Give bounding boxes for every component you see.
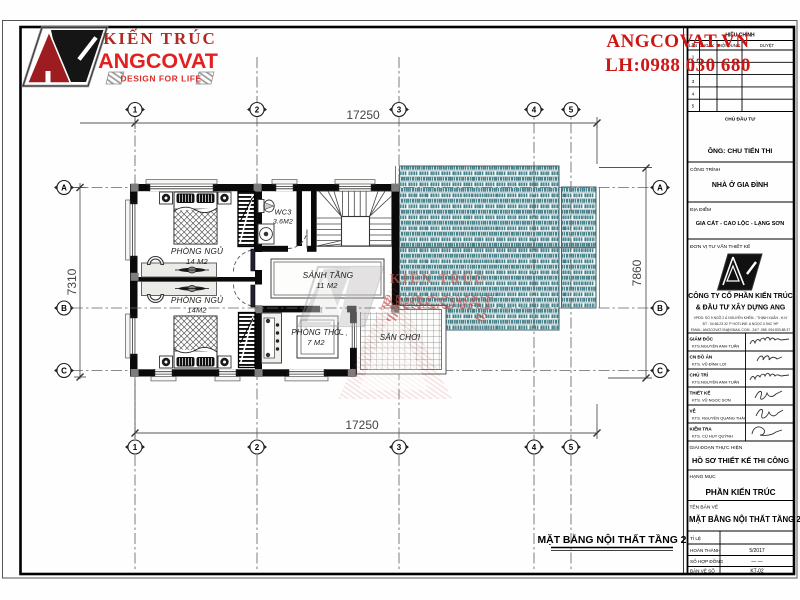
svg-text:3: 3 bbox=[397, 106, 402, 115]
svg-text:4: 4 bbox=[532, 443, 537, 452]
svg-text:KTS. VŨ NGỌC SƠN: KTS. VŨ NGỌC SƠN bbox=[692, 398, 731, 403]
svg-text:VPĐD: SỐ 9 NGÕ 2 Á NGUYỄN KHÊ: VPĐD: SỐ 9 NGÕ 2 Á NGUYỄN KHÊM - 'THỊNH … bbox=[694, 315, 788, 320]
svg-text:14 M2: 14 M2 bbox=[186, 257, 208, 266]
svg-text:HỒ SƠ THIẾT KẾ THI CÔNG: HỒ SƠ THIẾT KẾ THI CÔNG bbox=[692, 455, 789, 465]
svg-text:B: B bbox=[61, 304, 67, 313]
svg-text:ANGCOVAT.VN: ANGCOVAT.VN bbox=[606, 31, 749, 52]
svg-text:5: 5 bbox=[569, 443, 574, 452]
svg-text:KTS. VŨ ĐÌNH LỢI: KTS. VŨ ĐÌNH LỢI bbox=[692, 362, 726, 367]
svg-text:A: A bbox=[61, 184, 67, 193]
svg-text:1: 1 bbox=[133, 443, 138, 452]
svg-text:17250: 17250 bbox=[346, 108, 380, 122]
svg-text:B: B bbox=[657, 304, 663, 313]
svg-text:ĐƠN VỊ TƯ VẤN THIẾT KẾ: ĐƠN VỊ TƯ VẤN THIẾT KẾ bbox=[690, 243, 751, 250]
svg-text:EMAIL: ANGCOVAT.VN@GMAIL.CO: EMAIL: ANGCOVAT.VN@GMAIL.COM - 24/7 .058… bbox=[691, 328, 790, 332]
svg-text:ANGCOVAT: ANGCOVAT bbox=[98, 49, 218, 73]
svg-text:3.6M2: 3.6M2 bbox=[273, 219, 293, 226]
svg-text:LH:0988 030 680: LH:0988 030 680 bbox=[605, 55, 751, 76]
svg-text:SẢNH TẦNG: SẢNH TẦNG bbox=[303, 269, 354, 280]
svg-text:MẶT BẰNG NỘI THẤT TẦNG 2: MẶT BẰNG NỘI THẤT TẦNG 2 bbox=[689, 514, 800, 524]
svg-text:1: 1 bbox=[133, 106, 138, 115]
svg-text:CHỦ TRÌ: CHỦ TRÌ bbox=[690, 371, 709, 378]
svg-text:17250: 17250 bbox=[345, 418, 379, 432]
svg-text:NHÀ Ở GIA ĐÌNH: NHÀ Ở GIA ĐÌNH bbox=[712, 180, 768, 189]
svg-text:DUYỆT: DUYỆT bbox=[760, 43, 775, 48]
svg-text:TỈ LỆ: TỈ LỆ bbox=[690, 534, 701, 541]
svg-text:14M2: 14M2 bbox=[187, 306, 207, 315]
svg-text:7 M2: 7 M2 bbox=[307, 338, 325, 347]
svg-text:KIẾN TRÚC: KIẾN TRÚC bbox=[103, 29, 217, 48]
svg-text:BẢN VẼ SỐ: BẢN VẼ SỐ bbox=[690, 568, 715, 574]
svg-text:PHÒNG NGỦ: PHÒNG NGỦ bbox=[171, 294, 223, 305]
svg-text:C: C bbox=[61, 367, 67, 376]
svg-text:VẼ: VẼ bbox=[690, 408, 696, 414]
svg-text:CN ĐỒ ÁN: CN ĐỒ ÁN bbox=[690, 354, 713, 360]
svg-text:PHẦN KIẾN TRÚC: PHẦN KIẾN TRÚC bbox=[705, 486, 775, 497]
svg-text:7310: 7310 bbox=[65, 268, 79, 295]
svg-text:5/2017: 5/2017 bbox=[749, 548, 765, 554]
svg-text:2: 2 bbox=[255, 443, 260, 452]
svg-text:ĐT : 04.66.23.32 'P HOTL: ĐT : 04.66.23.32 'P HOTLINE: A NGỌC 0.94… bbox=[703, 322, 780, 326]
svg-text:SỐ HỢP ĐỒNG: SỐ HỢP ĐỒNG bbox=[690, 558, 724, 564]
svg-text:HẠNG MỤC: HẠNG MỤC bbox=[690, 474, 717, 480]
svg-text:CHỦ ĐẦU TƯ: CHỦ ĐẦU TƯ bbox=[725, 116, 755, 123]
svg-text:GIA CÁT - CAO LỘC - LẠNG SƠN: GIA CÁT - CAO LỘC - LẠNG SƠN bbox=[696, 219, 784, 227]
svg-text:A: A bbox=[657, 184, 663, 193]
svg-text:PHÒNG THỜ: PHÒNG THỜ bbox=[291, 328, 342, 337]
svg-text:11 M2: 11 M2 bbox=[316, 281, 338, 290]
svg-text:ANGCOVAT: ANGCOVAT bbox=[381, 292, 494, 314]
svg-text:MẶT BẰNG NỘI THẤT TẦNG 2: MẶT BẰNG NỘI THẤT TẦNG 2 bbox=[538, 533, 687, 546]
svg-text:WC3: WC3 bbox=[274, 208, 292, 217]
svg-text:4: 4 bbox=[532, 106, 537, 115]
svg-text:5: 5 bbox=[569, 106, 574, 115]
svg-text:DESIGN FOR LIFE: DESIGN FOR LIFE bbox=[120, 74, 201, 84]
svg-text:GIÁM ĐỐC: GIÁM ĐỐC bbox=[690, 336, 714, 342]
svg-text:CÔNG TRÌNH: CÔNG TRÌNH bbox=[690, 166, 721, 173]
svg-text:ĐỊA ĐIỂM: ĐỊA ĐIỂM bbox=[690, 206, 711, 213]
svg-text:— —: — — bbox=[751, 559, 762, 565]
svg-text:KTS.NGUYỄN ANH TUẤN: KTS.NGUYỄN ANH TUẤN bbox=[692, 344, 739, 349]
svg-text:KTS.NGUYỄN ANH TUẤN: KTS.NGUYỄN ANH TUẤN bbox=[692, 380, 739, 385]
svg-text:3: 3 bbox=[397, 443, 402, 452]
svg-text:PHÒNG NGỦ: PHÒNG NGỦ bbox=[171, 245, 223, 256]
svg-text:KIẾN TRÚC: KIẾN TRÚC bbox=[390, 270, 487, 287]
svg-text:7860: 7860 bbox=[630, 259, 644, 286]
svg-text:KTS. NGUYỄN QUANG THÁI: KTS. NGUYỄN QUANG THÁI bbox=[692, 416, 745, 421]
svg-text:HOÀN THÀNH: HOÀN THÀNH bbox=[690, 547, 720, 553]
svg-text:2: 2 bbox=[255, 106, 260, 115]
svg-text:KT-02: KT-02 bbox=[750, 569, 764, 575]
svg-text:KTS. CÙ HUY QUỲNH: KTS. CÙ HUY QUỲNH bbox=[692, 434, 733, 439]
svg-text:THIẾT KẾ: THIẾT KẾ bbox=[690, 390, 711, 396]
svg-text:C: C bbox=[657, 367, 663, 376]
svg-text:SÂN CHƠI: SÂN CHƠI bbox=[380, 333, 421, 342]
svg-text:KIỂM TRA: KIỂM TRA bbox=[690, 426, 713, 432]
